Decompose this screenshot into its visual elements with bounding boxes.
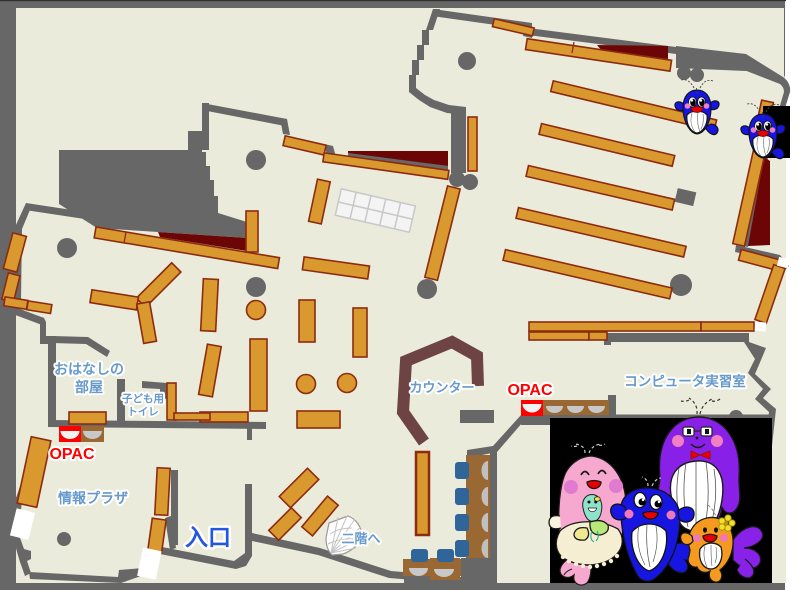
svg-text:トイレ: トイレ (127, 406, 159, 418)
svg-text:部屋: 部屋 (75, 379, 103, 395)
svg-text:カウンター: カウンター (409, 380, 474, 395)
svg-text:情報プラザ: 情報プラザ (58, 490, 128, 506)
svg-text:二階へ: 二階へ (341, 531, 380, 546)
svg-text:OPAC: OPAC (507, 382, 552, 399)
svg-text:OPAC: OPAC (49, 446, 94, 463)
svg-text:おはなしの: おはなしの (54, 361, 124, 377)
svg-text:子ども用: 子ども用 (122, 392, 164, 405)
svg-text:入口: 入口 (185, 524, 231, 550)
svg-text:コンピュータ実習室: コンピュータ実習室 (624, 373, 746, 389)
